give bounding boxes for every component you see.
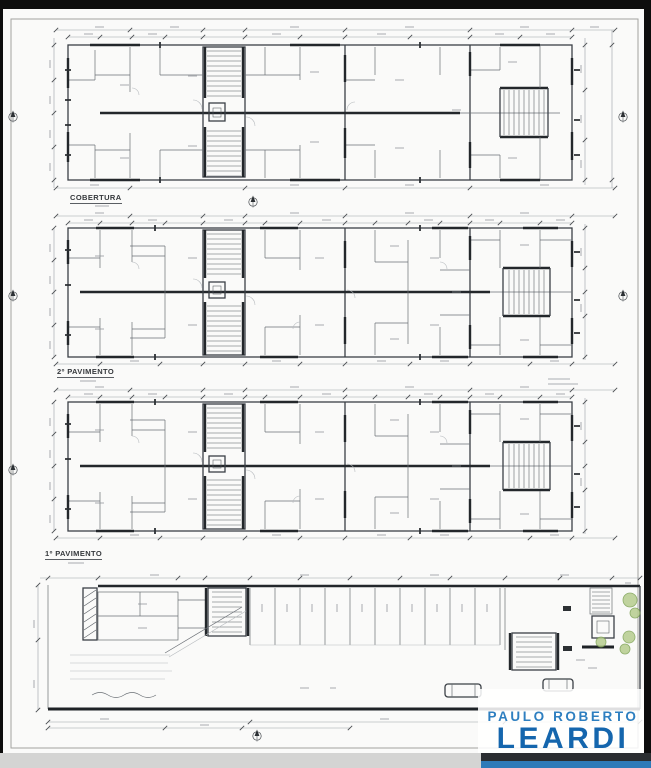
north-arrow-icon — [9, 111, 17, 123]
north-arrow-icon — [619, 111, 627, 123]
parking-stalls — [250, 588, 500, 645]
floor-label-cobertura: COBERTURA — [70, 193, 122, 204]
photo-frame-left — [0, 9, 3, 753]
floor-plan-2-pavimento — [54, 216, 615, 364]
floor-plan-1-pavimento — [54, 390, 615, 538]
elevator-shaft — [592, 616, 614, 638]
logo-dark-band — [481, 753, 651, 761]
floor-plan-cobertura — [54, 30, 615, 188]
stair-secondary — [512, 633, 556, 670]
logo-blue-band — [481, 761, 651, 768]
north-arrow-icon — [249, 196, 257, 208]
photo-frame-top — [0, 0, 651, 9]
tree-icon — [596, 593, 640, 654]
north-arrow-icon — [253, 730, 261, 742]
leardi-logo: PAULO ROBERTO LEARDI — [478, 689, 648, 753]
floor-label-1-pavimento: 1º PAVIMENTO — [45, 549, 102, 560]
photo-frame-right — [644, 9, 651, 753]
architectural-drawing — [0, 0, 651, 768]
ramp — [165, 607, 242, 653]
gate-hatch — [83, 588, 97, 640]
north-arrow-icon — [9, 290, 17, 302]
floor-plan-sheet: COBERTURA 2º PAVIMENTO 1º PAVIMENTO PAUL… — [0, 0, 651, 768]
floor-label-2-pavimento: 2º PAVIMENTO — [57, 367, 114, 378]
dimension-ticks-and-annotations — [9, 27, 642, 742]
logo-wordmark: LEARDI — [497, 725, 630, 754]
north-arrow-icon — [9, 464, 17, 476]
north-arrow-icon — [619, 290, 627, 302]
